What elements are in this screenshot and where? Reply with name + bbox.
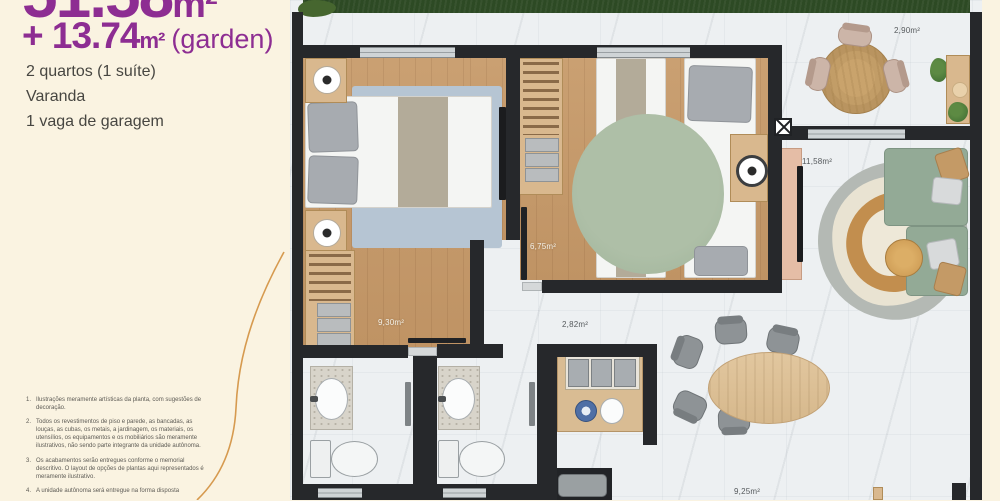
sideboard-bowl: [952, 82, 968, 98]
bathroom2-toilet-tank: [438, 440, 459, 478]
coffee-table: [885, 239, 923, 277]
wardrobe-drawer: [525, 168, 559, 182]
dining-chair: [670, 387, 710, 424]
bathroom2-window: [443, 488, 486, 498]
living-area-label: 11,58m²: [802, 157, 832, 166]
bathroom2-faucet: [438, 396, 446, 402]
feature-item: Varanda: [26, 85, 164, 110]
wall-kitchen-right: [643, 344, 657, 445]
cooktop-glass: [568, 359, 589, 387]
wall-bedroom1-right: [470, 240, 484, 347]
bathroom2-door-leaf: [529, 382, 535, 426]
bedroom1-lamp: [313, 219, 341, 247]
terrace-area-label: 2,90m²: [894, 26, 920, 35]
bathroom1-toilet-tank: [310, 440, 331, 478]
bathroom1-faucet: [310, 396, 318, 402]
bathroom1-sink: [315, 378, 348, 420]
wardrobe-drawer: [317, 303, 351, 317]
bathroom2-sink: [442, 378, 475, 420]
wall-kitchen-top: [537, 344, 657, 357]
dining-chair: [714, 317, 748, 345]
info-panel: 51.58m² + 13.74m²(garden) 2 quartos (1 s…: [0, 0, 290, 500]
bedroom1-bed-runner: [398, 97, 448, 207]
wall-bedroom2-bottom: [542, 280, 782, 293]
feature-item: 2 quartos (1 suíte): [26, 60, 164, 85]
bedroom2-door-leaf: [521, 207, 527, 280]
garden-area-title: + 13.74m²(garden): [22, 17, 273, 54]
cooktop-glass: [591, 359, 612, 387]
kitchen-sink: [600, 398, 624, 424]
wall-bedroom-divider: [506, 58, 520, 240]
bathroom1-window: [318, 488, 362, 498]
terrace-sliding-door: [808, 129, 905, 139]
feature-item: 1 vaga de garagem: [26, 110, 164, 135]
footnote: 4.A unidade autônoma será entregue na fo…: [26, 487, 212, 495]
dining-chair: [670, 333, 705, 372]
suite-door-threshold: [408, 347, 437, 356]
wall-bathroom2-right: [537, 344, 557, 490]
bedroom1-tv: [499, 107, 506, 200]
wall-bathroom-divider: [413, 356, 437, 490]
entry-door-leaf: [873, 487, 883, 500]
bedroom1-pillow: [307, 155, 359, 205]
bathroom1-toilet-bowl: [331, 441, 378, 477]
wall-bedroom2-living: [768, 58, 782, 290]
dining-area-label: 9,25m²: [734, 487, 760, 496]
wall-bathroom2-top: [437, 344, 503, 358]
bedroom1-wardrobe-rail: [309, 254, 351, 301]
bedroom2-wardrobe-rail: [523, 62, 559, 135]
garden-area-unit: m²: [139, 28, 164, 53]
suite-door-leaf: [408, 338, 466, 343]
entry-door-pivot: [952, 483, 966, 500]
bedroom2-lamp: [736, 155, 768, 187]
bathroom2-toilet-bowl: [459, 441, 505, 477]
shaft-symbol: [774, 118, 792, 136]
wall-left-outer: [292, 12, 303, 500]
bedroom2-window: [597, 47, 690, 58]
wall-bedroom1-bottom: [303, 345, 408, 358]
living-tv: [797, 166, 803, 262]
garden-grass: [303, 0, 970, 13]
cooktop-glass: [614, 359, 636, 387]
wardrobe-drawer: [525, 138, 559, 152]
bedroom2-area-label: 6,75m²: [530, 242, 556, 251]
wall-right-outer: [970, 12, 982, 500]
bedroom1-window: [360, 47, 455, 58]
wardrobe-drawer: [317, 318, 351, 332]
bedroom1-area-label: 9,30m²: [378, 318, 404, 327]
dining-table: [708, 352, 830, 424]
bathroom1-door-leaf: [405, 382, 411, 426]
hall-area-label: 2,82m²: [562, 320, 588, 329]
kitchen-plate: [575, 400, 597, 422]
garden-area-value: + 13.74: [22, 15, 139, 56]
footnote: 3.Os acabamentos serão entregues conform…: [26, 457, 212, 481]
bedroom1-pillow: [307, 101, 359, 153]
feature-list: 2 quartos (1 suíte) Varanda 1 vaga de ga…: [26, 60, 164, 134]
bedroom2-door-threshold: [522, 282, 542, 291]
stove: [553, 468, 612, 500]
footnote-list: 1.Ilustrações meramente artísticas da pl…: [26, 396, 212, 501]
floor-plan: 2,90m² 11,58m² 9,30m² 6,75m² 2,82m² 9,25…: [290, 0, 982, 500]
bedroom2-pillow: [687, 65, 753, 123]
garden-area-suffix: (garden): [171, 24, 273, 54]
wardrobe-drawer: [525, 153, 559, 167]
bedroom2-blanket: [694, 246, 748, 276]
footnote: 1.Ilustrações meramente artísticas da pl…: [26, 396, 212, 412]
bedroom1-lamp: [313, 66, 341, 94]
garden-bush: [298, 0, 336, 17]
sofa-pillow: [931, 177, 964, 206]
terrace-table: [820, 42, 892, 114]
footnote: 2.Todos os revestimentos de piso e pared…: [26, 418, 212, 450]
